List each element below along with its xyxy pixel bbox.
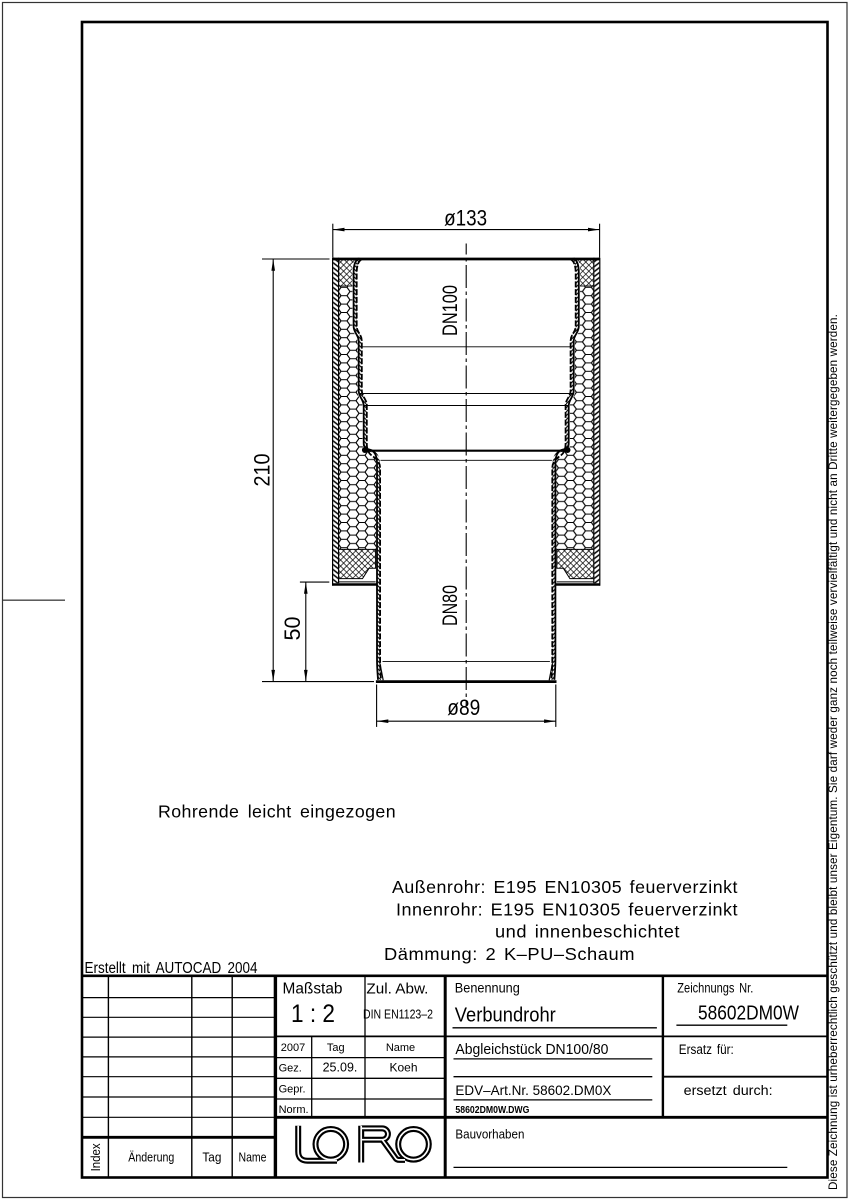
svg-text:DIN EN1123–2: DIN EN1123–2 [363,1008,433,1022]
svg-text:Norm.: Norm. [279,1104,309,1116]
svg-text:1 : 2: 1 : 2 [291,1000,335,1028]
svg-text:Tag: Tag [327,1042,345,1054]
svg-text:ersetzt durch:: ersetzt durch: [684,1083,773,1098]
svg-text:Abgleichstück DN100/80: Abgleichstück DN100/80 [455,1042,608,1058]
svg-text:Außenrohr: E195 EN10305 feuer: Außenrohr: E195 EN10305 feuerverzinkt [392,877,738,897]
svg-text:Ersatz für:: Ersatz für: [679,1042,734,1057]
svg-text:Erstellt mit AUTOCAD 2004: Erstellt mit AUTOCAD 2004 [85,960,258,977]
svg-text:Änderung: Änderung [128,1151,174,1165]
svg-text:Benennung: Benennung [455,981,520,996]
svg-text:ø133: ø133 [444,205,487,230]
svg-text:Rohrende leicht eingezogen: Rohrende leicht eingezogen [158,802,396,822]
svg-text:DN80: DN80 [438,585,462,626]
svg-text:ø89: ø89 [447,695,480,720]
svg-text:210: 210 [250,454,275,487]
svg-text:Zul. Abw.: Zul. Abw. [366,981,428,998]
svg-text:Tag: Tag [202,1151,221,1165]
svg-text:Name: Name [239,1151,267,1165]
svg-text:2007: 2007 [281,1042,305,1054]
svg-text:und innenbeschichtet: und innenbeschichtet [495,922,680,942]
svg-text:58602DM0W.DWG: 58602DM0W.DWG [455,1105,529,1116]
svg-text:Name: Name [386,1042,415,1054]
svg-text:Verbundrohr: Verbundrohr [455,1004,556,1026]
svg-text:Dämmung: 2 K–PU–Schaum: Dämmung: 2 K–PU–Schaum [384,944,635,964]
svg-text:50: 50 [280,617,305,641]
svg-text:Gepr.: Gepr. [279,1083,306,1095]
svg-text:Koeh: Koeh [389,1061,417,1075]
svg-text:Maßstab: Maßstab [283,981,343,998]
svg-text:Bauvorhaben: Bauvorhaben [455,1126,524,1141]
svg-text:Zeichnungs Nr.: Zeichnungs Nr. [677,981,753,996]
svg-text:DN100: DN100 [438,285,462,336]
svg-text:EDV–Art.Nr. 58602.DM0X: EDV–Art.Nr. 58602.DM0X [455,1082,612,1098]
svg-text:Diese Zeichnung ist urheberrec: Diese Zeichnung ist urheberrechtlich ges… [827,314,840,1190]
svg-text:58602DM0W: 58602DM0W [698,1002,799,1024]
svg-text:Innenrohr: E195 EN10305 feuer: Innenrohr: E195 EN10305 feuerverzinkt [396,900,738,920]
svg-text:Index: Index [89,1143,103,1172]
svg-text:25.09.: 25.09. [323,1061,358,1075]
svg-text:Gez.: Gez. [279,1063,302,1075]
